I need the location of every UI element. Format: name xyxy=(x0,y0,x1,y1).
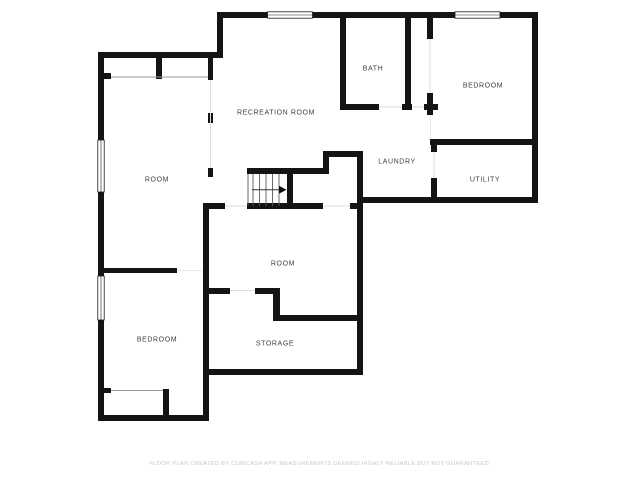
wall-bedroom-closet-right xyxy=(163,389,169,421)
wall-closet-divider xyxy=(405,18,411,110)
window-icon xyxy=(268,12,313,18)
room-label-bedroom-upper: BEDROOM xyxy=(463,83,503,90)
room-label-bedroom-lower: BEDROOM xyxy=(137,337,177,344)
window-icon xyxy=(455,12,500,18)
wall-bedroom-left-b xyxy=(427,93,433,115)
footer-disclaimer: FLOOR PLAN CREATED BY CUBICASA APP. MEAS… xyxy=(149,461,491,467)
stairs xyxy=(248,174,287,206)
wall-room-bedroom-divider xyxy=(98,268,177,273)
wall-stairs-right xyxy=(287,168,293,209)
wall-bedroom-right-vertical xyxy=(203,203,209,421)
room-label-bath: BATH xyxy=(363,66,384,73)
walls xyxy=(98,12,538,421)
wall-bath-left xyxy=(340,18,346,110)
wall-divider-seg-c xyxy=(208,168,213,177)
wall-stair-row-b xyxy=(247,203,323,209)
room-label-laundry: LAUNDRY xyxy=(378,159,416,166)
window-icon xyxy=(98,140,104,192)
wall-left-exterior xyxy=(98,52,104,421)
wall-closet-stub-left xyxy=(104,73,111,79)
wall-closet-stub-mid xyxy=(156,58,162,79)
wall-right-exterior xyxy=(532,12,538,203)
wall-bath-bottom-a xyxy=(340,104,379,110)
wall-storage-bottom xyxy=(203,369,363,375)
room-label-room-left: ROOM xyxy=(145,177,169,184)
wall-bump-horizontal xyxy=(323,151,363,157)
wall-storage-top-a xyxy=(203,288,230,294)
floor-plan: RECREATION ROOM BATH BEDROOM LAUNDRY UTI… xyxy=(0,0,640,480)
window-icon xyxy=(98,276,104,320)
room-label-utility: UTILITY xyxy=(470,177,500,184)
room-label-recreation-room: RECREATION ROOM xyxy=(237,110,315,117)
wall-bedroom-left-a xyxy=(427,18,433,39)
wall-mid-right-vertical xyxy=(357,151,363,375)
wall-utility-bottom xyxy=(357,197,538,203)
room-label-storage: STORAGE xyxy=(256,341,294,348)
wall-top-connector xyxy=(217,12,223,58)
wall-divider-seg-a xyxy=(208,58,213,80)
wall-bedroom-closet-stub xyxy=(104,388,111,393)
wall-utility-left-a xyxy=(431,145,437,152)
wall-stair-row-a xyxy=(203,203,225,209)
wall-stair-row-c xyxy=(350,203,363,209)
room-label-room-middle: ROOM xyxy=(271,261,295,268)
wall-utility-left-b xyxy=(431,178,437,203)
wall-bedroom-bottom xyxy=(98,415,209,421)
floor-plan-page: RECREATION ROOM BATH BEDROOM LAUNDRY UTI… xyxy=(0,0,640,480)
stairs-direction-arrow-icon xyxy=(252,186,287,194)
wall-storage-step-horizontal xyxy=(273,315,363,321)
wall-bedroom-utility-divider xyxy=(430,139,538,145)
wall-upper-left-top xyxy=(98,52,223,58)
